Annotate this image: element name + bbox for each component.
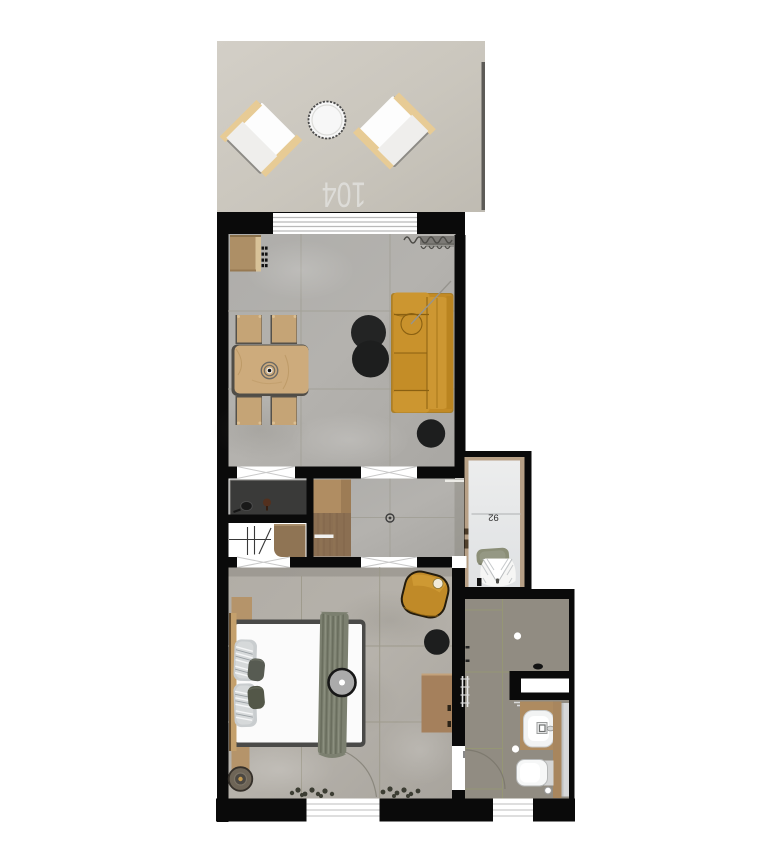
svg-text:92: 92 <box>488 512 499 523</box>
svg-text:104: 104 <box>322 175 366 214</box>
